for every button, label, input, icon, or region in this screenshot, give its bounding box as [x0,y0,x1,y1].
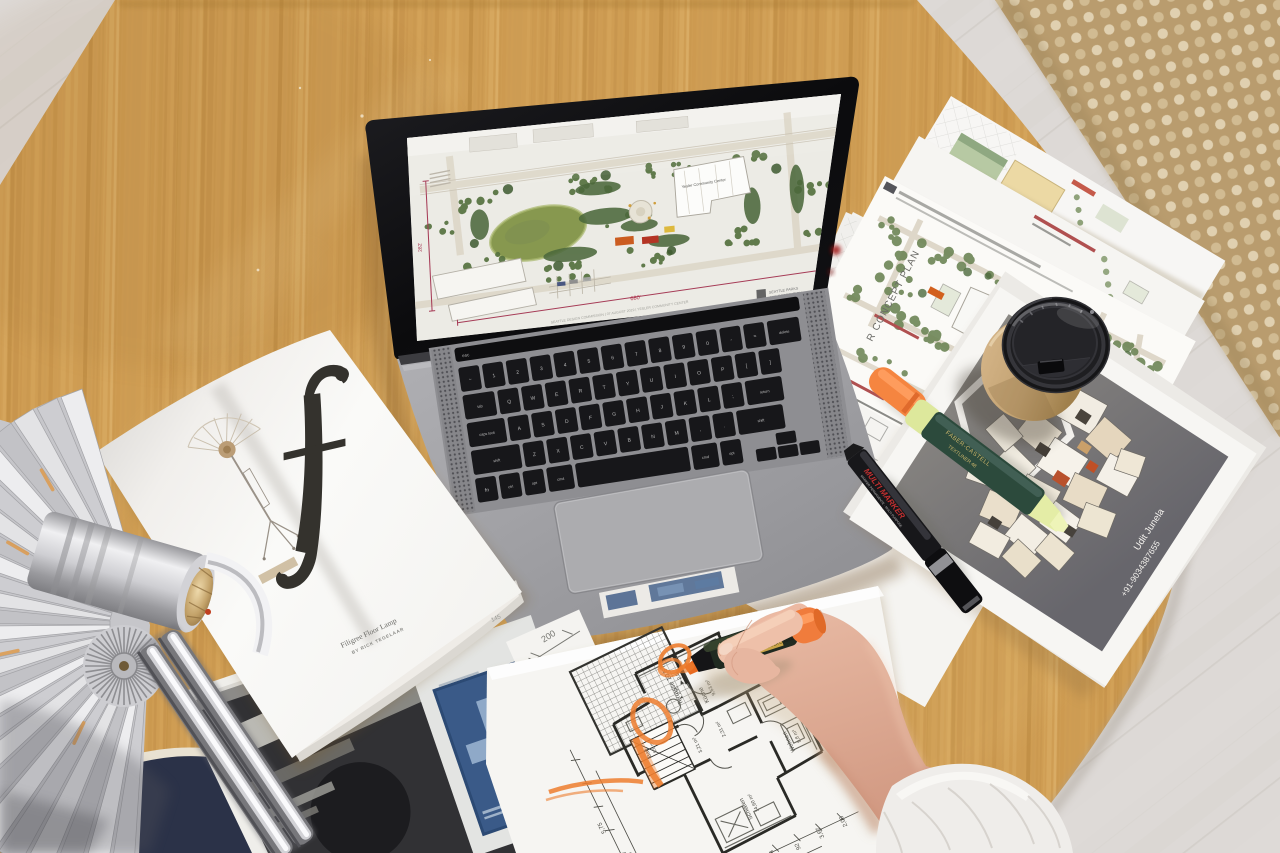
svg-text:tab: tab [477,404,483,409]
svg-text:ctrl: ctrl [508,485,514,490]
svg-text:M: M [674,430,679,437]
svg-text:282': 282' [417,242,423,252]
